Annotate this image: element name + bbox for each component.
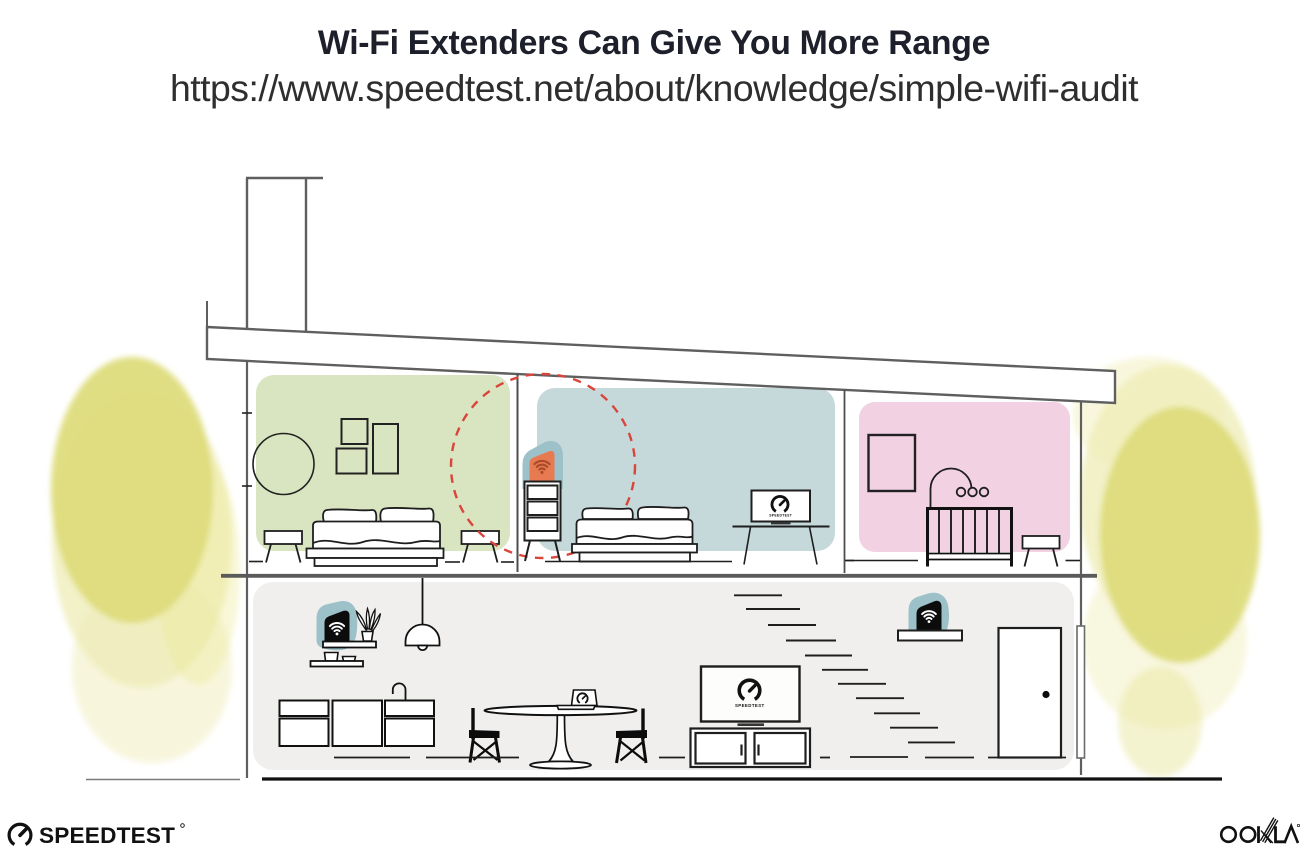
svg-text:SPEEDTEST: SPEEDTEST: [735, 703, 765, 708]
svg-text:SPEEDTEST: SPEEDTEST: [39, 823, 175, 848]
svg-text:SPEEDTEST: SPEEDTEST: [769, 513, 792, 517]
